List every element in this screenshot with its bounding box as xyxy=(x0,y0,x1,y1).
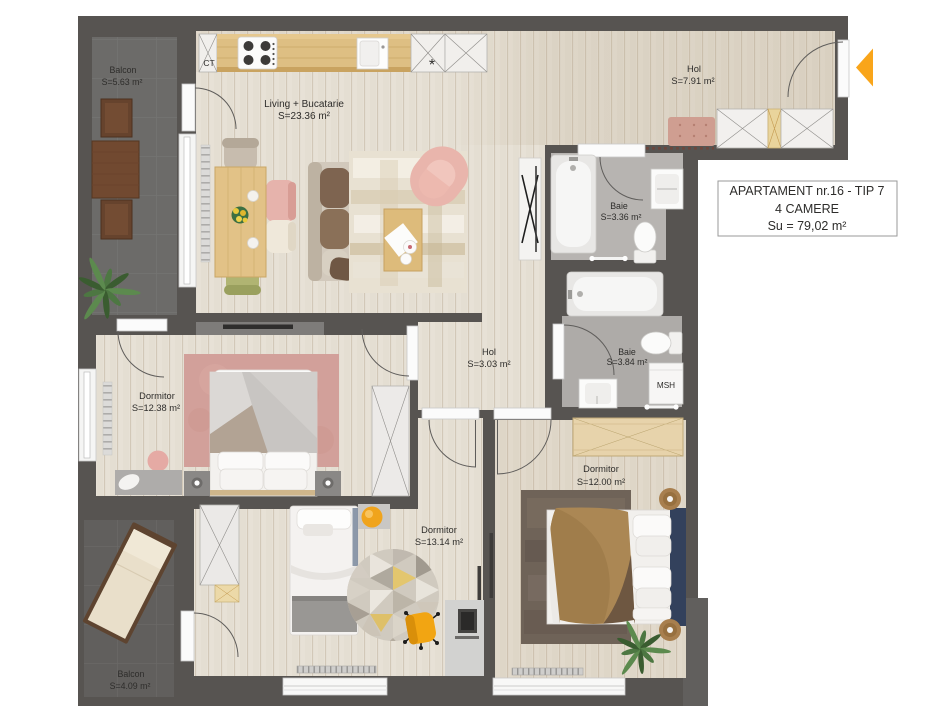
svg-text:S=13.14 m²: S=13.14 m² xyxy=(415,537,463,547)
svg-text:S=23.36 m²: S=23.36 m² xyxy=(278,111,331,122)
svg-text:4 CAMERE: 4 CAMERE xyxy=(775,202,839,216)
svg-text:S=3.36 m²: S=3.36 m² xyxy=(601,212,642,222)
svg-text:MSH: MSH xyxy=(657,381,675,390)
svg-text:*: * xyxy=(429,57,435,74)
svg-text:S=12.00 m²: S=12.00 m² xyxy=(577,477,625,487)
svg-text:Balcon: Balcon xyxy=(110,65,137,75)
svg-text:APARTAMENT nr.16 - TIP 7: APARTAMENT nr.16 - TIP 7 xyxy=(730,184,885,198)
svg-text:Dormitor: Dormitor xyxy=(139,391,175,401)
svg-text:Su = 79,02 m²: Su = 79,02 m² xyxy=(768,219,847,233)
svg-text:Baie: Baie xyxy=(610,201,628,211)
svg-text:Living + Bucatarie: Living + Bucatarie xyxy=(264,99,344,110)
svg-text:S=5.63 m²: S=5.63 m² xyxy=(102,77,143,87)
svg-text:S=4.09 m²: S=4.09 m² xyxy=(110,681,151,691)
svg-text:Hol: Hol xyxy=(482,347,496,357)
svg-text:Hol: Hol xyxy=(687,64,701,74)
svg-text:S=3.84 m²: S=3.84 m² xyxy=(607,357,648,367)
svg-text:S=12.38 m²: S=12.38 m² xyxy=(132,403,180,413)
svg-text:S=3.03 m²: S=3.03 m² xyxy=(467,359,510,369)
svg-text:Balcon: Balcon xyxy=(118,669,145,679)
svg-text:Dormitor: Dormitor xyxy=(583,464,619,474)
svg-text:S=7.91 m²: S=7.91 m² xyxy=(671,76,714,86)
svg-text:CT: CT xyxy=(203,58,214,68)
svg-text:Dormitor: Dormitor xyxy=(421,525,457,535)
svg-text:Baie: Baie xyxy=(618,347,636,357)
